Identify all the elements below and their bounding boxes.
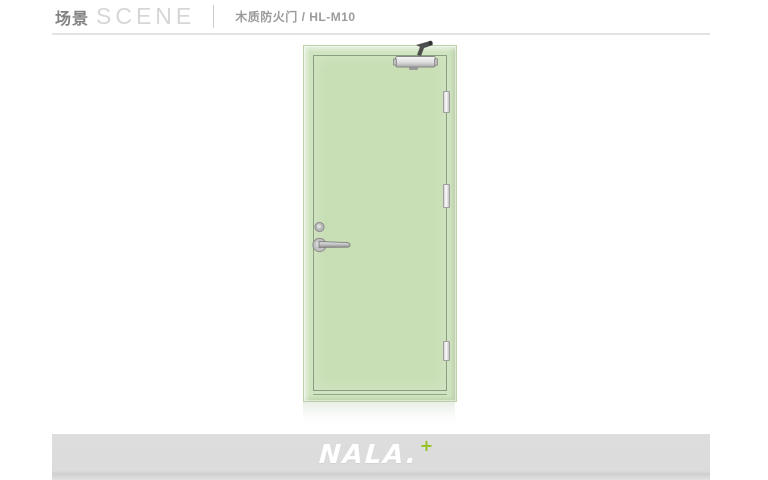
page: 场景 SCENE 木质防火门 / HL-M10 [0, 0, 768, 480]
footer-brand-band: NALA. + [52, 434, 710, 480]
hinge-top-icon [443, 91, 450, 113]
door-bottom-rail-line [313, 394, 447, 395]
brand-logo: NALA. + [319, 440, 433, 470]
door-closer-icon [393, 39, 438, 72]
hinge-middle-icon [443, 184, 450, 208]
brand-plus-icon: + [420, 438, 433, 454]
door-image [303, 45, 457, 402]
header: 场景 SCENE 木质防火门 / HL-M10 [52, 0, 710, 35]
section-title-en: SCENE [96, 3, 195, 30]
header-divider [213, 5, 214, 28]
brand-name: NALA. [318, 440, 419, 470]
door-reflection [303, 401, 455, 427]
product-label: 木质防火门 / HL-M10 [235, 8, 355, 25]
door-handle-icon [310, 219, 354, 253]
hinge-bottom-icon [443, 341, 450, 361]
section-title-cn: 场景 [52, 5, 89, 29]
